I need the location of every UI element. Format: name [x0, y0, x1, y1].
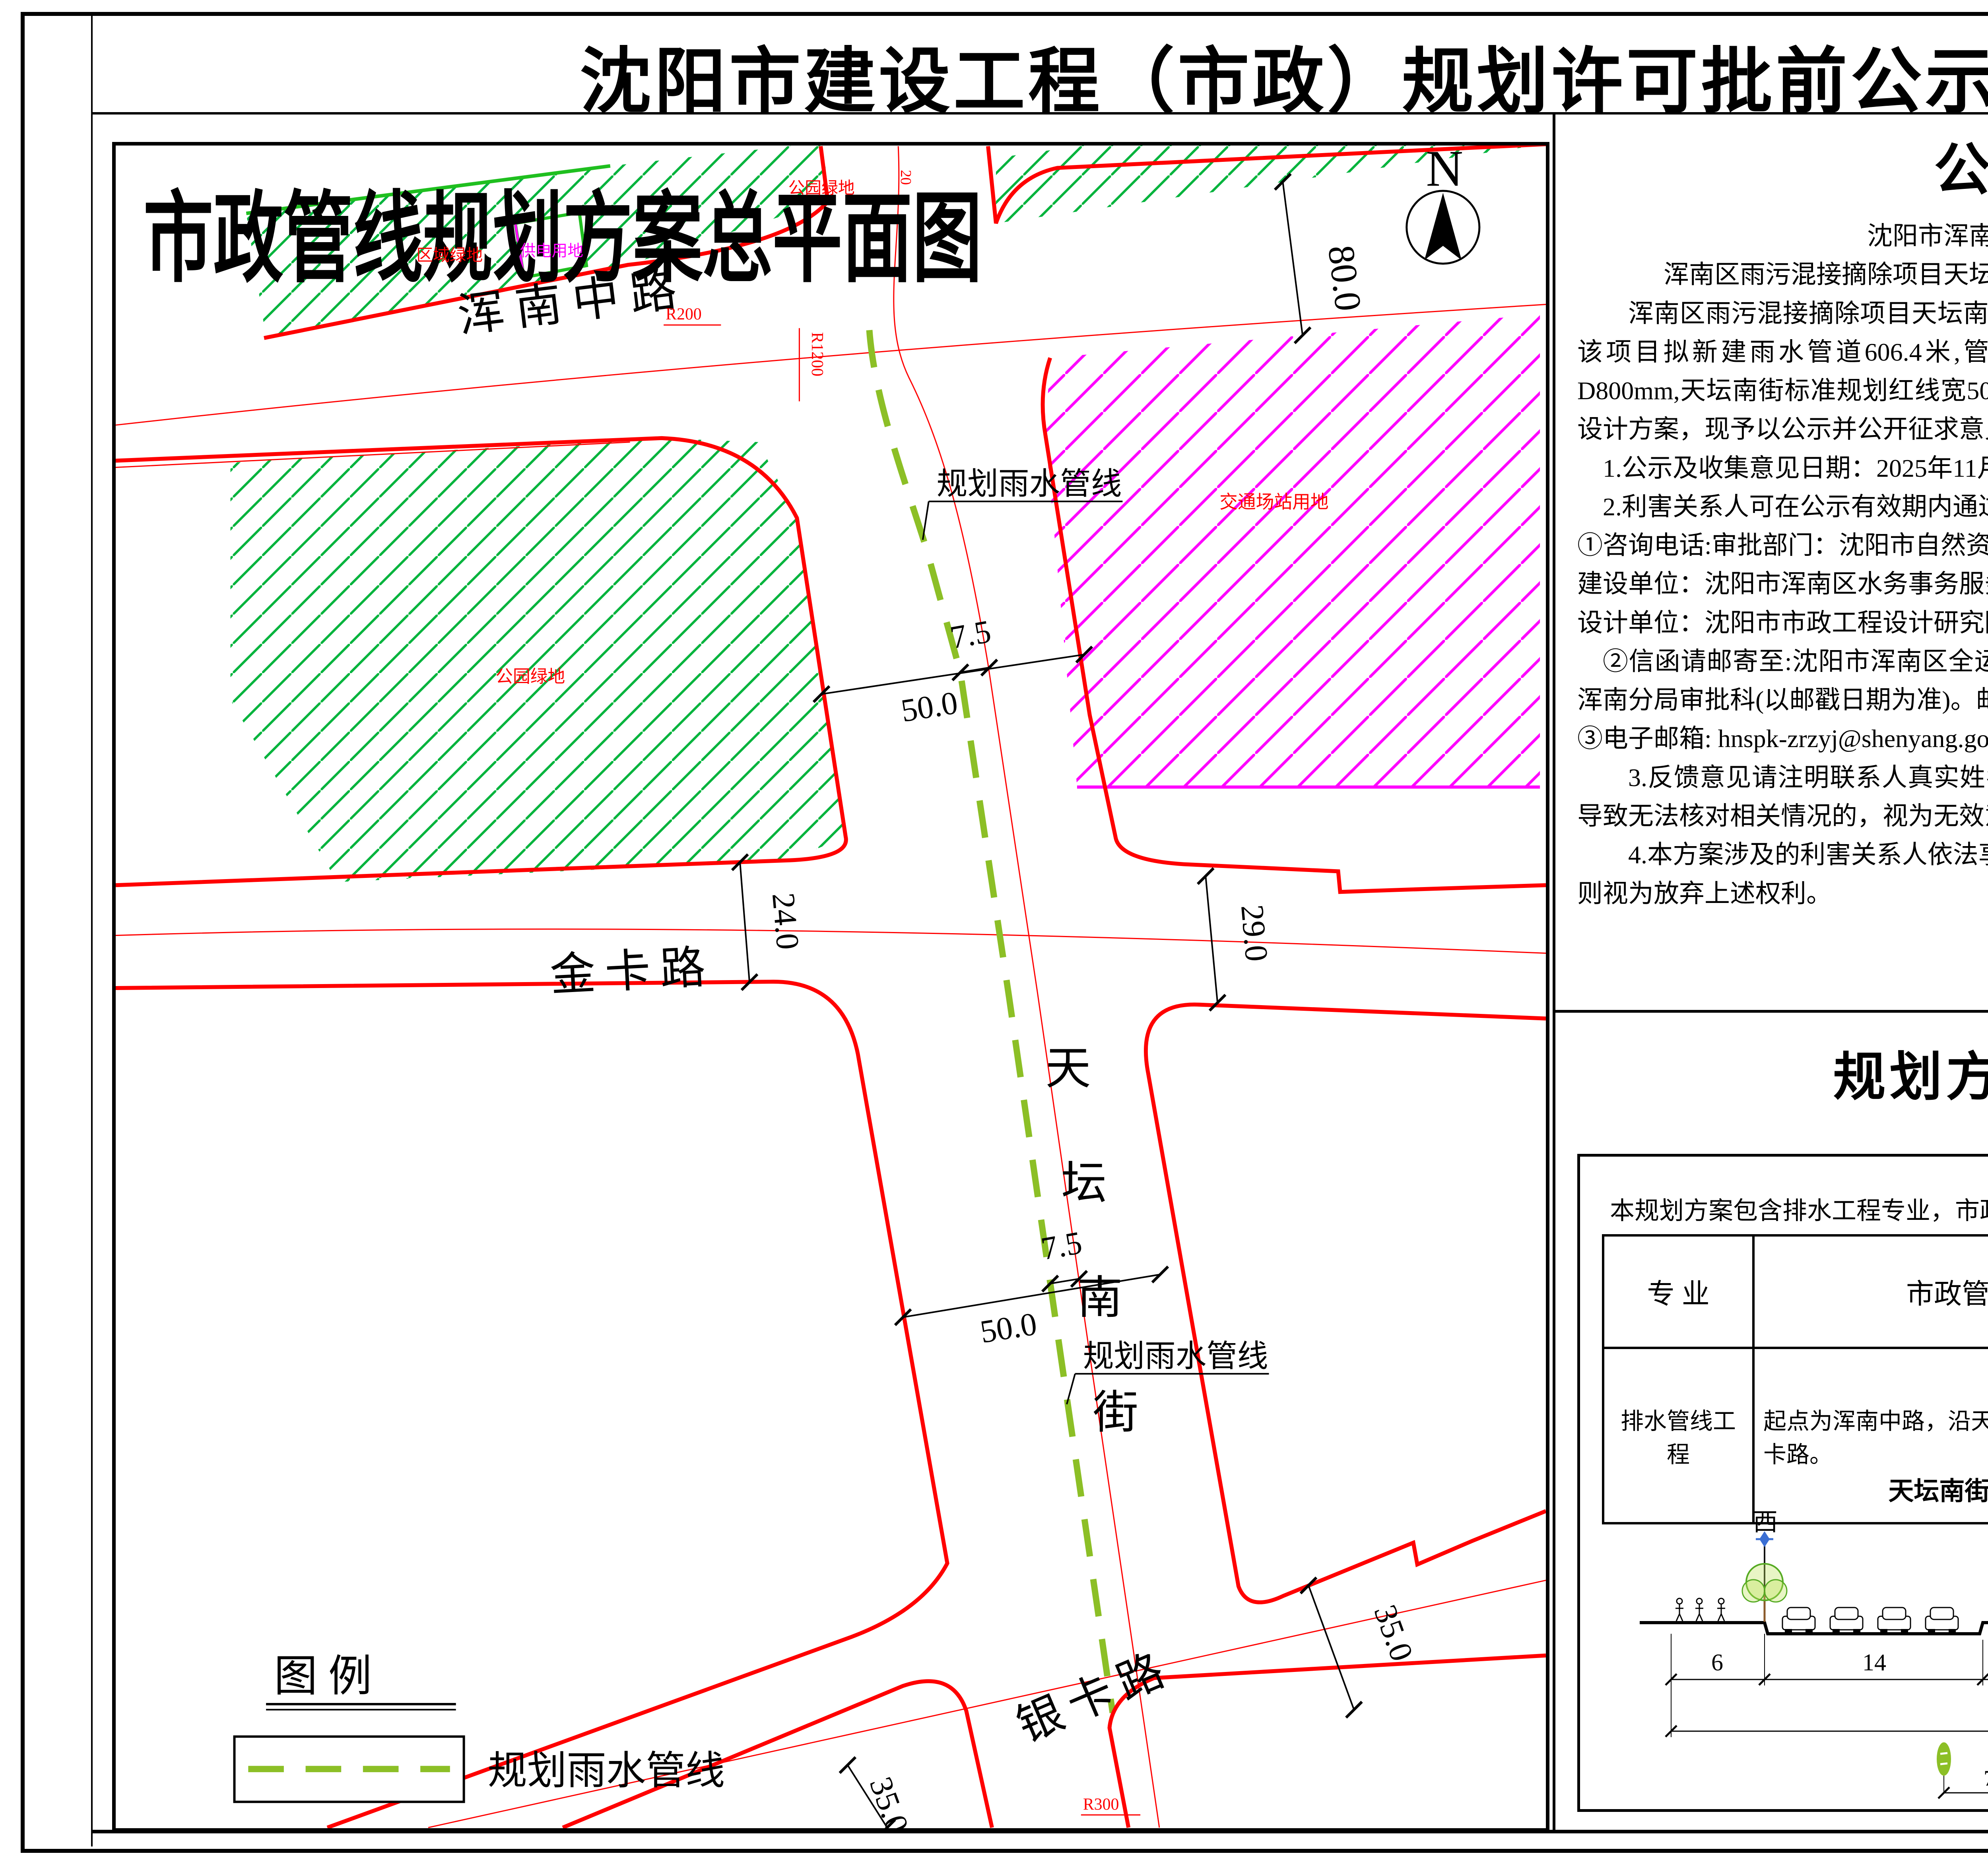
svg-text:坛: 坛	[1061, 1158, 1107, 1208]
svg-text:街: 街	[1093, 1387, 1138, 1438]
park-green-left-parcel	[231, 438, 846, 882]
radius-r1200: R1200	[808, 332, 826, 376]
cross-section-drawing: 西 东	[1580, 1499, 1988, 1809]
parcel-label-transport: 交通场站用地	[1219, 492, 1329, 512]
notice-panel: 公示信息 沈阳市浑南区水务事务服务中心的 浑南区雨污混接摘除项目天坛南街(银卡路…	[1553, 113, 1988, 1013]
notice-line: 建设单位：沈阳市浑南区水务事务服务中心 024-24211049;	[1577, 565, 1988, 603]
notice-line: 浑南区雨污混接摘除项目天坛南街(银卡路-浑南中路)规划许可批前公示	[1577, 255, 1988, 294]
sheet-inner-left-line	[91, 14, 93, 1846]
svg-text:24.0: 24.0	[765, 891, 806, 951]
site-plan-panel: 市政管线规划方案总平面图 N 浑南中路 金卡路 银卡路 天 坛 南 街 区域绿地…	[112, 142, 1549, 1832]
dim-80: 80.0	[1275, 174, 1369, 343]
notice-line: 设计单位：沈阳市市政工程设计研究院有限公司 024-23892785;	[1577, 604, 1988, 642]
svg-text:35.0: 35.0	[863, 1772, 916, 1828]
notice-line: 沈阳市浑南区水务事务服务中心的	[1577, 217, 1988, 255]
dim-75-50-b: 7.5 50.0	[895, 1224, 1168, 1350]
svg-text:80.0: 80.0	[1320, 243, 1369, 313]
dim-75-50-a: 7.5 50.0	[813, 613, 1092, 729]
plan-panel: 规划方案主要内容 本规划方案包含排水工程专业，市政管线主要内容见下表： 专 业 …	[1553, 1013, 1988, 1832]
plan-content-box: 本规划方案包含排水工程专业，市政管线主要内容见下表： 专 业 市政管线接驳点 新…	[1577, 1154, 1988, 1812]
notice-line: 4.本方案涉及的利害关系人依法享有陈述、申辩以及申请听证等权利，逾期未申请则视为…	[1577, 835, 1988, 913]
table-header: 市政管线接驳点	[1753, 1235, 1988, 1348]
plan-intro: 本规划方案包含排水工程专业，市政管线主要内容见下表：	[1610, 1190, 1988, 1226]
radius-r200: R200	[666, 305, 702, 323]
svg-text:规划雨水管线: 规划雨水管线	[487, 1749, 725, 1793]
parcel-label-regional: 区域绿地	[416, 247, 483, 265]
svg-text:7.5: 7.5	[1039, 1224, 1085, 1267]
dim-35-sw: 35.0	[840, 1757, 916, 1828]
notice-line: 浑南区雨污混接摘除项目天坛南街（银卡路-浑南中路）工程位于沈阳市浑南区，该项目拟…	[1577, 294, 1988, 449]
dim-20: 20	[897, 170, 914, 185]
notice-line: ①咨询电话:审批部门：沈阳市自然资源局 024-84821869;	[1577, 526, 1988, 565]
site-plan-drawing: 市政管线规划方案总平面图 N 浑南中路 金卡路 银卡路 天 坛 南 街 区域绿地…	[116, 146, 1546, 1828]
notice-title: 公示信息	[1577, 124, 1988, 206]
svg-text:规划雨水管线: 规划雨水管线	[1083, 1339, 1268, 1373]
dim-35-ne: 35.0	[1301, 1578, 1421, 1718]
road-label-jinka: 金卡路	[549, 942, 716, 1001]
notice-line: 3.反馈意见请注明联系人真实姓名、电话、地址等信息;如因信息不完整或不真实导致无…	[1577, 758, 1988, 836]
svg-text:规划雨水管线: 规划雨水管线	[937, 467, 1122, 501]
dim-24: 24.0	[732, 854, 806, 990]
section-total-dim: 50	[1666, 1685, 1988, 1737]
svg-text:14: 14	[1862, 1649, 1886, 1676]
dim-29: 29.0	[1198, 868, 1275, 1010]
board-title: 沈阳市建设工程（市政）规划许可批前公示板	[92, 23, 1988, 127]
svg-text:50.0: 50.0	[899, 684, 960, 729]
road-label-yinka: 银卡路	[1010, 1642, 1179, 1752]
svg-text:29.0: 29.0	[1234, 903, 1275, 963]
svg-text:50.0: 50.0	[978, 1305, 1039, 1350]
parcel-label-park-top: 公园绿地	[788, 179, 855, 198]
svg-text:南: 南	[1077, 1273, 1122, 1323]
notice-line: ③电子邮箱: hnspk-zrzyj@shenyang.gov.cn	[1577, 719, 1988, 758]
jinka-centerline	[116, 929, 1546, 953]
radius-r300: R300	[1083, 1796, 1119, 1814]
north-label: N	[1426, 146, 1463, 197]
map-legend: 图 例 规划雨水管线	[235, 1652, 725, 1802]
notice-line: ②信函请邮寄至:沈阳市浑南区全运路109号（创新天地H座9楼）沈阳市自然资源局浑…	[1577, 642, 1988, 720]
svg-text:6: 6	[1711, 1649, 1723, 1676]
svg-text:天: 天	[1045, 1043, 1091, 1094]
parcel-label-park-left: 公园绿地	[495, 667, 565, 686]
notice-signature: 沈阳市浑南区水务事务服务中心	[1577, 941, 1988, 981]
parcel-label-power: 供电用地	[520, 242, 583, 260]
west-label: 西	[1753, 1509, 1778, 1536]
notice-line: 1.公示及收集意见日期：2025年11月25日—2025年12月3日（7个工作日…	[1577, 449, 1988, 487]
notice-line: 2.利害关系人可在公示有效期内通过以下途径咨询或提出意见：	[1577, 487, 1988, 526]
table-header: 专 业	[1603, 1235, 1753, 1348]
transport-station-parcel	[1045, 314, 1540, 787]
north-arrow-icon	[1407, 191, 1479, 264]
section-pipeline-marker: 7.5	[1937, 1742, 1988, 1798]
section-dim-chain: 6 14 10 14 6	[1666, 1634, 1988, 1685]
plan-title: 规划方案主要内容	[1555, 1035, 1988, 1111]
svg-text:7.5: 7.5	[947, 613, 994, 656]
svg-text:7.5: 7.5	[1984, 1766, 1988, 1791]
svg-text:图 例: 图 例	[274, 1652, 372, 1701]
